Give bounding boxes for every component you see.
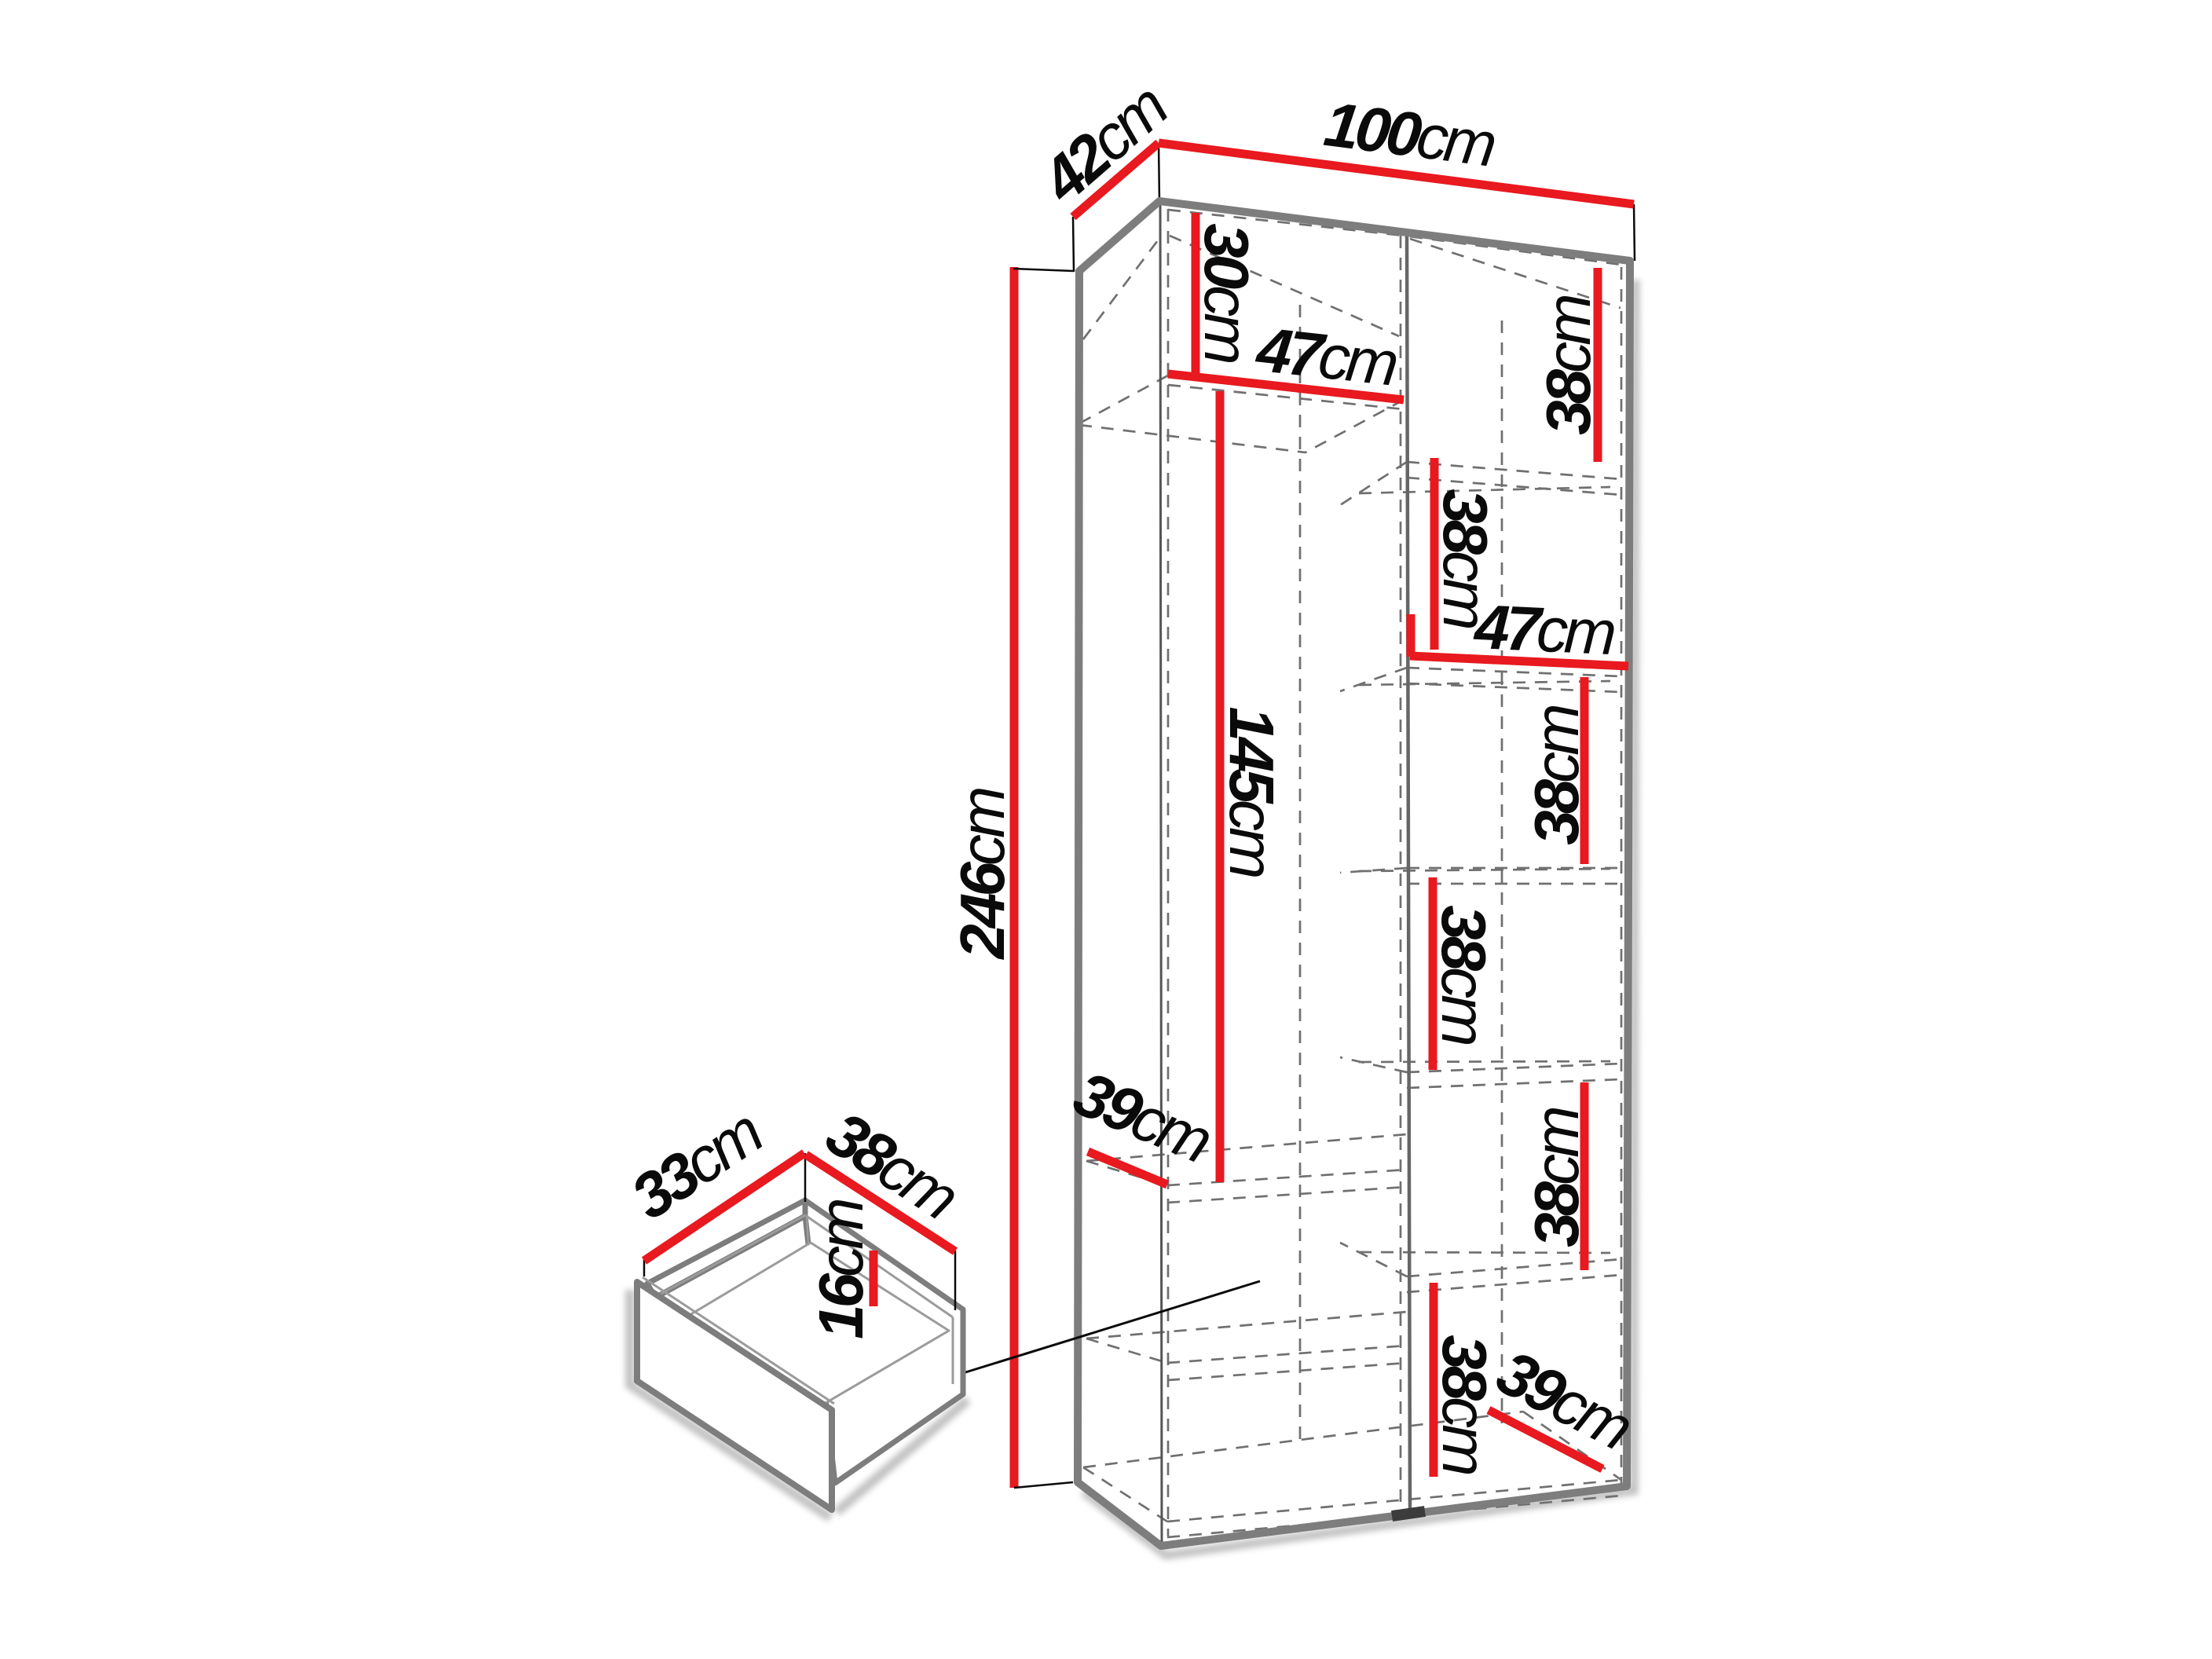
svg-text:246cm: 246cm [947, 789, 1017, 960]
svg-text:38cm: 38cm [1430, 1335, 1500, 1474]
svg-text:38cm: 38cm [1522, 706, 1591, 845]
svg-text:145cm: 145cm [1217, 706, 1287, 876]
svg-text:30cm: 30cm [1192, 223, 1262, 362]
svg-text:38cm: 38cm [1429, 905, 1499, 1044]
svg-text:16cm: 16cm [806, 1200, 876, 1339]
svg-text:38cm: 38cm [1533, 296, 1603, 435]
svg-text:47cm: 47cm [1471, 591, 1615, 668]
svg-text:38cm: 38cm [1522, 1108, 1591, 1247]
